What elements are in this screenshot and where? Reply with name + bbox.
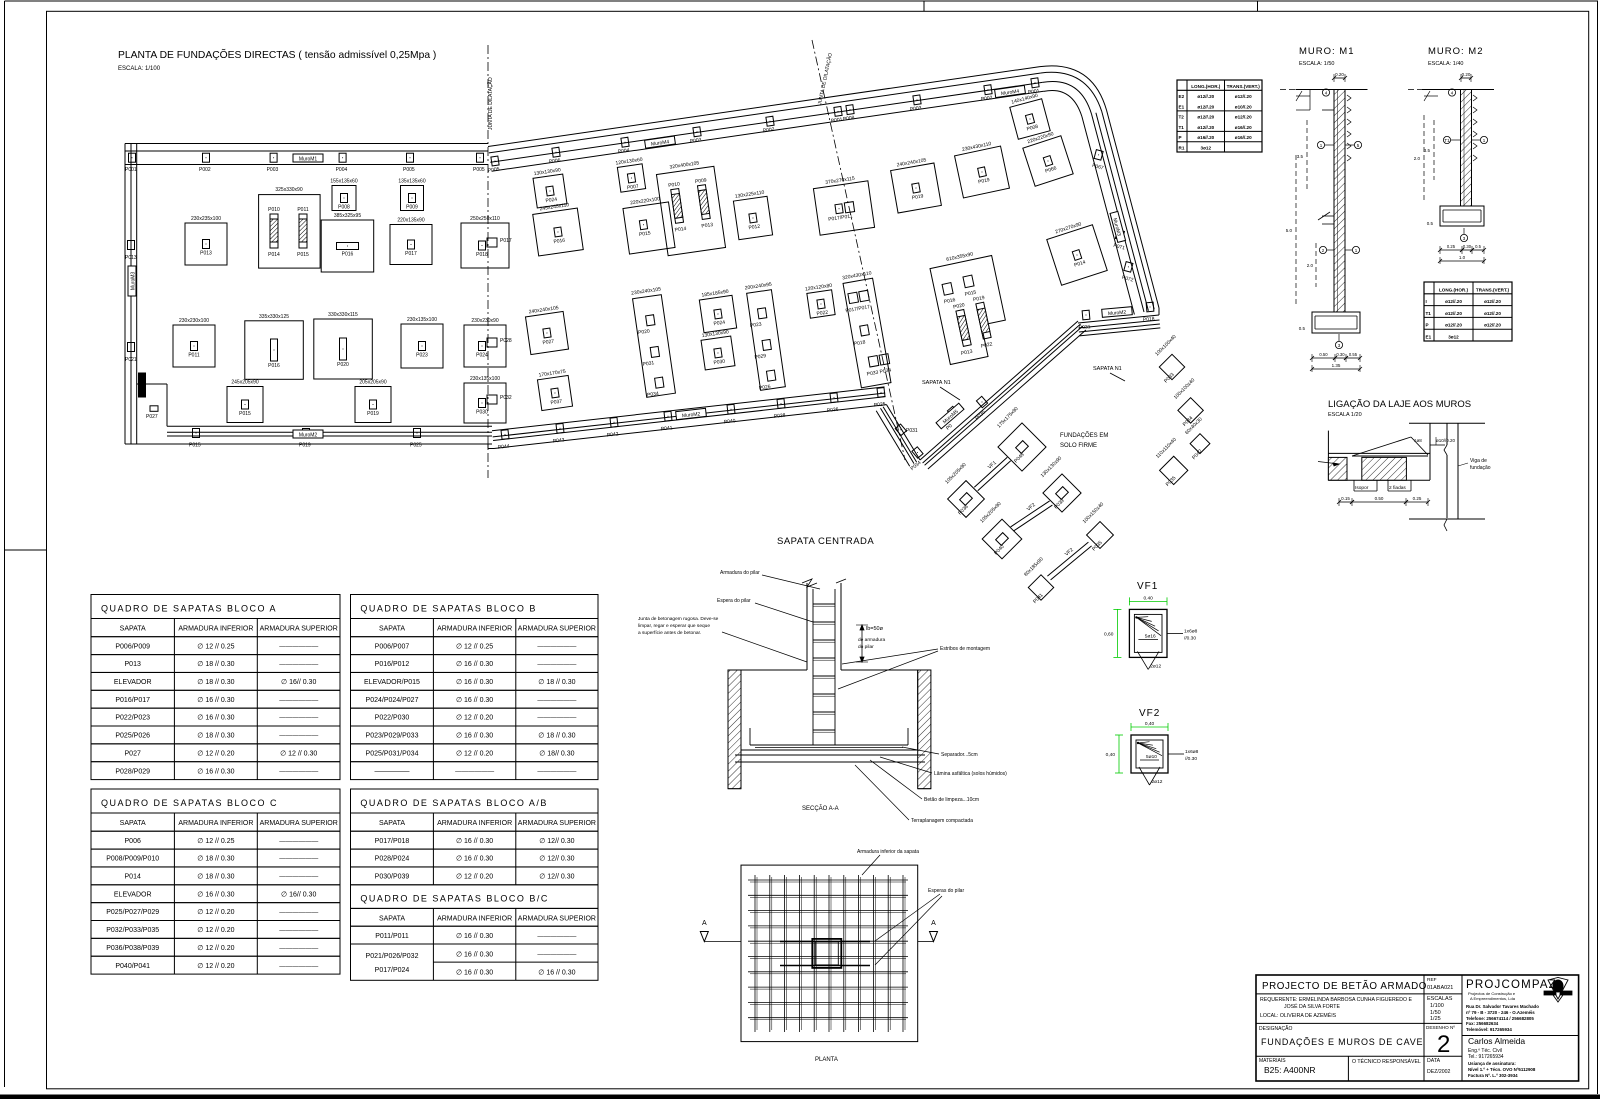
svg-text:ø16//.20: ø16//.20 [1197, 135, 1214, 140]
svg-text:DEZ/2002: DEZ/2002 [1427, 1069, 1450, 1075]
svg-text:ø12//.20: ø12//.20 [1445, 311, 1462, 316]
svg-text:0.25: 0.25 [1413, 496, 1422, 501]
svg-text:∅ 16// 0.30: ∅ 16// 0.30 [281, 679, 316, 686]
svg-text:P028/P029: P028/P029 [115, 768, 150, 775]
svg-text:ARMADURA SUPERIOR: ARMADURA SUPERIOR [518, 626, 596, 633]
svg-text:MURO: M1: MURO: M1 [1299, 46, 1355, 57]
svg-text:P: P [1179, 135, 1182, 140]
svg-text:∅ 12 // 0.20: ∅ 12 // 0.20 [456, 715, 493, 722]
svg-text:O TÉCNICO RESPONSÁVEL: O TÉCNICO RESPONSÁVEL [1352, 1058, 1421, 1065]
svg-text:230x135x100: 230x135x100 [470, 376, 500, 382]
svg-text:Esperas do pilar: Esperas do pilar [928, 888, 964, 894]
svg-text:∅ 18 // 0.30: ∅ 18 // 0.30 [197, 733, 234, 740]
svg-text:∅ 12 // 0.25: ∅ 12 // 0.25 [197, 643, 234, 650]
svg-text:1x6ø8: 1x6ø8 [1185, 749, 1199, 755]
svg-text:P019: P019 [367, 411, 379, 417]
svg-text:P006/P009: P006/P009 [115, 643, 150, 650]
svg-text:lb=50ø: lb=50ø [866, 626, 884, 632]
svg-text:∅ 16 // 0.30: ∅ 16 // 0.30 [456, 697, 493, 704]
svg-text:P015: P015 [189, 443, 201, 449]
svg-text:ø12//.20: ø12//.20 [1484, 323, 1501, 328]
svg-text:∅ 16 // 0.30: ∅ 16 // 0.30 [456, 952, 493, 959]
svg-text:0.5: 0.5 [1299, 326, 1306, 331]
svg-text:SOLO FIRME: SOLO FIRME [1060, 443, 1097, 449]
svg-text:ø12//.20: ø12//.20 [1235, 94, 1252, 99]
svg-text:∅ 18 // 0.30: ∅ 18 // 0.30 [538, 679, 575, 686]
svg-text:ARMADURA SUPERIOR: ARMADURA SUPERIOR [260, 820, 338, 827]
svg-text:0,40: 0,40 [1145, 721, 1155, 727]
svg-text:VF2: VF2 [1139, 708, 1160, 719]
svg-text:——————: —————— [279, 661, 319, 668]
svg-text:P021/P026/P032: P021/P026/P032 [366, 953, 419, 960]
svg-text:∅ 18 // 0.30: ∅ 18 // 0.30 [197, 856, 234, 863]
svg-text:P024: P024 [476, 353, 488, 359]
svg-text:ELEVADOR: ELEVADOR [114, 679, 152, 686]
svg-text:LONG.(HOR.): LONG.(HOR.) [1439, 287, 1469, 292]
svg-text:P015: P015 [297, 252, 309, 258]
svg-text://0.30: //0.30 [1184, 635, 1196, 641]
svg-text:P004: P004 [336, 167, 348, 173]
svg-text:∅ 12 // 0.20: ∅ 12 // 0.20 [197, 750, 234, 757]
svg-text:ø12//.20: ø12//.20 [1197, 104, 1214, 109]
svg-text:P025/P026: P025/P026 [115, 733, 150, 740]
svg-text:P006: P006 [125, 838, 141, 845]
svg-text:JUNTA DE DILATAÇÃO: JUNTA DE DILATAÇÃO [487, 77, 494, 130]
svg-text://0.30: //0.30 [1185, 756, 1197, 762]
svg-text:——————: —————— [279, 697, 319, 704]
svg-text:0.5: 0.5 [1427, 221, 1434, 226]
svg-text:LONG.(HOR.): LONG.(HOR.) [1191, 84, 1221, 89]
svg-text:0.30: 0.30 [1336, 352, 1345, 357]
svg-text:P014: P014 [268, 252, 280, 258]
svg-text:205x205x90: 205x205x90 [359, 380, 386, 386]
svg-text:ELEVADOR/P015: ELEVADOR/P015 [364, 679, 420, 686]
svg-text:0.5: 0.5 [1475, 244, 1481, 249]
svg-text:2.0: 2.0 [1307, 263, 1314, 268]
svg-text:P025/P027/P029: P025/P027/P029 [106, 909, 159, 916]
svg-text:——————: —————— [537, 661, 577, 668]
svg-text:P018: P018 [1143, 316, 1155, 323]
svg-text:P016/P017: P016/P017 [115, 697, 150, 704]
svg-text:ø12//.20: ø12//.20 [1445, 323, 1462, 328]
svg-text:PROJECTO DE BETÃO ARMADO: PROJECTO DE BETÃO ARMADO [1262, 981, 1427, 992]
svg-text:SAPATA N1: SAPATA N1 [1093, 366, 1122, 372]
svg-text:135x135x60: 135x135x60 [398, 179, 425, 185]
svg-text:PLANTA: PLANTA [815, 1057, 838, 1063]
svg-text:0,60: 0,60 [1104, 631, 1114, 637]
svg-text:Viga de: Viga de [1470, 458, 1487, 464]
svg-text:MuroM1: MuroM1 [299, 156, 318, 162]
svg-text:P017: P017 [500, 238, 512, 244]
svg-text:ø16//.20: ø16//.20 [1235, 135, 1252, 140]
svg-text:——————: —————— [279, 838, 319, 845]
svg-text:FUNDAÇÕES EM: FUNDAÇÕES EM [1060, 432, 1108, 439]
svg-text:325x330x90: 325x330x90 [275, 187, 302, 193]
svg-text:P011: P011 [297, 207, 309, 213]
svg-text:∅ 12 // 0.30: ∅ 12 // 0.30 [280, 750, 317, 757]
svg-text:ø12//.20: ø12//.20 [1197, 115, 1214, 120]
svg-text:∅ 12// 0.30: ∅ 12// 0.30 [539, 856, 574, 863]
svg-text:0.15: 0.15 [1341, 496, 1350, 501]
svg-text:230x135x100: 230x135x100 [407, 317, 437, 323]
svg-text:P016: P016 [342, 252, 354, 258]
svg-text:330x330x115: 330x330x115 [328, 312, 358, 318]
svg-text:P008: P008 [338, 205, 350, 211]
svg-text:——————: —————— [279, 715, 319, 722]
svg-text:E2: E2 [1179, 94, 1185, 99]
svg-text:P018: P018 [476, 252, 488, 258]
svg-text:FUNDAÇÕES E MUROS DE CAVE: FUNDAÇÕES E MUROS DE CAVE [1261, 1037, 1423, 1047]
svg-text:——————: —————— [279, 768, 319, 775]
svg-text:∅ 16 // 0.30: ∅ 16 // 0.30 [197, 715, 234, 722]
svg-text:∅ 12 // 0.20: ∅ 12 // 0.20 [197, 963, 234, 970]
svg-text:A: A [702, 920, 707, 927]
svg-text:ESCALA: 1/50: ESCALA: 1/50 [1299, 61, 1334, 67]
svg-text:P025/P031/P034: P025/P031/P034 [366, 750, 419, 757]
svg-text:230x235x100: 230x235x100 [191, 216, 221, 222]
svg-text:∅ 12 // 0.20: ∅ 12 // 0.20 [197, 927, 234, 934]
svg-text:ESCALA: 1/100: ESCALA: 1/100 [118, 66, 161, 72]
svg-text:1.0: 1.0 [1459, 255, 1466, 260]
svg-text:0.50: 0.50 [1319, 352, 1328, 357]
svg-text:Armadura inferior da sapata: Armadura inferior da sapata [857, 849, 919, 855]
svg-text:∅ 12// 0.30: ∅ 12// 0.30 [539, 838, 574, 845]
svg-text:P006/P007: P006/P007 [375, 643, 410, 650]
svg-text:5.0: 5.0 [1286, 228, 1293, 233]
svg-text:0,40: 0,40 [1106, 752, 1116, 758]
svg-text:SECÇÃO A-A: SECÇÃO A-A [802, 805, 839, 812]
svg-text:TRANS.(VERT.): TRANS.(VERT.) [1476, 287, 1510, 292]
svg-text:PROJCOMPAZ: PROJCOMPAZ [1466, 979, 1557, 991]
svg-text:Isopor: Isopor [1355, 485, 1369, 491]
svg-text:LIGAÇÃO DA LAJE AOS MUROS: LIGAÇÃO DA LAJE AOS MUROS [1328, 399, 1471, 410]
svg-text:Junta de betonagem rugosa. Dev: Junta de betonagem rugosa. Deve-se [638, 616, 719, 622]
svg-text:ø16//.20: ø16//.20 [1235, 125, 1252, 130]
svg-text:Tel.: 917265934: Tel.: 917265934 [1468, 1054, 1504, 1060]
svg-text:2.0: 2.0 [1414, 156, 1421, 161]
svg-text:∅ 16 // 0.30: ∅ 16 // 0.30 [197, 697, 234, 704]
svg-text:DATA: DATA [1427, 1058, 1441, 1064]
svg-text:∅ 16 // 0.30: ∅ 16 // 0.30 [456, 679, 493, 686]
svg-text:ø12//.20: ø12//.20 [1484, 299, 1501, 304]
svg-text:P032/P033/P035: P032/P033/P035 [106, 927, 159, 934]
svg-text:P020: P020 [337, 362, 349, 368]
svg-text:——————: —————— [537, 952, 577, 959]
svg-text:P021: P021 [125, 357, 137, 363]
svg-text:Nível 1.º + Técn. OVO Nº611290: Nível 1.º + Técn. OVO Nº6112908 [1468, 1067, 1536, 1072]
svg-text:ARMADURA INFERIOR: ARMADURA INFERIOR [178, 820, 253, 827]
svg-text:R1: R1 [1179, 146, 1185, 151]
svg-text:245x205x90: 245x205x90 [231, 380, 258, 386]
svg-text:P002: P002 [199, 167, 211, 173]
svg-text:2 fiadas: 2 fiadas [1389, 485, 1406, 491]
svg-text:Terraplanagem compactada: Terraplanagem compactada [911, 818, 973, 824]
svg-text:∅ 12// 0.30: ∅ 12// 0.30 [539, 874, 574, 881]
svg-text:∅ 16 // 0.30: ∅ 16 // 0.30 [456, 933, 493, 940]
svg-text:3.5: 3.5 [1297, 154, 1304, 159]
svg-text:∅ 12 // 0.20: ∅ 12 // 0.20 [456, 750, 493, 757]
svg-text:Carlos Almeida: Carlos Almeida [1468, 1036, 1525, 1046]
svg-text:230x230x90: 230x230x90 [471, 318, 498, 324]
svg-text:Separador...5cm: Separador...5cm [941, 752, 978, 758]
svg-text:Lâmina asfáltica (solos húmido: Lâmina asfáltica (solos húmidos) [934, 771, 1007, 777]
svg-text:ARMADURA INFERIOR: ARMADURA INFERIOR [178, 626, 253, 633]
svg-text:0.25: 0.25 [1447, 244, 1456, 249]
svg-text:1/100: 1/100 [1430, 1003, 1444, 1009]
svg-text:155x135x60: 155x135x60 [330, 179, 357, 185]
svg-text:A: A [931, 920, 936, 927]
svg-text:230x230x100: 230x230x100 [179, 318, 209, 324]
svg-text:∅ 16 // 0.30: ∅ 16 // 0.30 [456, 856, 493, 863]
svg-text:QUADRO DE SAPATAS BLOCO C: QUADRO DE SAPATAS BLOCO C [101, 798, 278, 808]
svg-text:P: P [1426, 323, 1429, 328]
svg-text:P022/P023: P022/P023 [115, 715, 150, 722]
svg-text:P036/P038/P039: P036/P038/P039 [106, 945, 159, 952]
svg-text:2ø12: 2ø12 [1152, 779, 1163, 785]
svg-text:QUADRO DE SAPATAS BLOCO B: QUADRO DE SAPATAS BLOCO B [360, 604, 537, 614]
svg-text:∅ 16 // 0.30: ∅ 16 // 0.30 [456, 970, 493, 977]
svg-text:SAPATA CENTRADA: SAPATA CENTRADA [777, 536, 874, 547]
svg-text:P017/P018: P017/P018 [375, 838, 410, 845]
svg-text:——————: —————— [279, 963, 319, 970]
svg-text:Armadura do pilar: Armadura do pilar [720, 570, 760, 576]
svg-text:ARMADURA INFERIOR: ARMADURA INFERIOR [437, 626, 512, 633]
svg-text:ARMADURA SUPERIOR: ARMADURA SUPERIOR [518, 915, 596, 922]
svg-text:SAPATA N1: SAPATA N1 [922, 380, 951, 386]
svg-text:TRANS.(VERT.): TRANS.(VERT.) [1227, 84, 1261, 89]
svg-text:220x135x90: 220x135x90 [397, 218, 424, 224]
svg-text:∅ 18// 0.30: ∅ 18// 0.30 [539, 750, 574, 757]
svg-text:P030/P039: P030/P039 [375, 874, 410, 881]
svg-text:3ø12: 3ø12 [1201, 146, 1212, 151]
svg-text:∅ 18 // 0.30: ∅ 18 // 0.30 [197, 874, 234, 881]
svg-text:T1: T1 [1179, 125, 1185, 130]
svg-text:——————: —————— [279, 733, 319, 740]
svg-text:∅ 18 // 0.30: ∅ 18 // 0.30 [197, 679, 234, 686]
svg-text:ø12//.20: ø12//.20 [1197, 94, 1214, 99]
svg-text:LOCAL: OLIVEIRA DE AZEMÉIS: LOCAL: OLIVEIRA DE AZEMÉIS [1260, 1012, 1337, 1019]
svg-text:5ø10: 5ø10 [1146, 754, 1157, 760]
svg-text:——————: —————— [537, 768, 577, 775]
svg-text:P005: P005 [403, 167, 415, 173]
svg-text:ARMADURA INFERIOR: ARMADURA INFERIOR [437, 820, 512, 827]
svg-text:P040/P041: P040/P041 [115, 963, 150, 970]
svg-text:JOSÉ DA SILVA FORTE: JOSÉ DA SILVA FORTE [1284, 1003, 1340, 1010]
svg-text:ARMADURA SUPERIOR: ARMADURA SUPERIOR [260, 626, 338, 633]
svg-text:0.55: 0.55 [1349, 352, 1358, 357]
svg-text:——————: —————— [455, 768, 495, 775]
svg-text:P027: P027 [125, 750, 141, 757]
svg-text:P001: P001 [125, 167, 137, 173]
svg-text:SAPATA: SAPATA [379, 915, 405, 922]
svg-text:QUADRO DE SAPATAS BLOCO B/C: QUADRO DE SAPATAS BLOCO B/C [360, 893, 549, 903]
svg-text:2: 2 [1437, 1031, 1450, 1058]
svg-text:2ø12: 2ø12 [1150, 663, 1161, 669]
svg-text:P003: P003 [267, 167, 279, 173]
svg-text:REF: REF [1427, 977, 1437, 983]
svg-text:P027: P027 [146, 414, 158, 420]
svg-text:ø12//.20: ø12//.20 [1235, 115, 1252, 120]
svg-text:1x6ø8: 1x6ø8 [1184, 628, 1198, 634]
svg-text:P013: P013 [125, 255, 137, 261]
svg-text:01ABA021: 01ABA021 [1427, 985, 1453, 991]
svg-text:QUADRO DE SAPATAS BLOCO A: QUADRO DE SAPATAS BLOCO A [101, 604, 277, 614]
svg-text:SAPATA: SAPATA [379, 820, 405, 827]
svg-text:ESCALA: 1/40: ESCALA: 1/40 [1428, 61, 1463, 67]
svg-text:P013: P013 [125, 661, 141, 668]
svg-text:ø12//.20: ø12//.20 [1445, 299, 1462, 304]
svg-text:MATERIAIS: MATERIAIS [1259, 1058, 1286, 1064]
svg-text:1ø8: 1ø8 [1414, 438, 1422, 443]
svg-text:P030: P030 [476, 410, 488, 416]
svg-text:P008/P009/P010: P008/P009/P010 [106, 856, 159, 863]
svg-text:SAPATA: SAPATA [379, 626, 405, 633]
svg-text:∅ 12 // 0.20: ∅ 12 // 0.20 [197, 945, 234, 952]
svg-text:P013: P013 [200, 251, 212, 257]
svg-text:∅ 18 // 0.30: ∅ 18 // 0.30 [197, 661, 234, 668]
svg-text:ELEVADOR: ELEVADOR [114, 891, 152, 898]
svg-text:MURO: M2: MURO: M2 [1428, 46, 1484, 57]
svg-text:5ø16: 5ø16 [1145, 633, 1156, 639]
svg-text:Usiança de assinatura:: Usiança de assinatura: [1468, 1061, 1516, 1066]
svg-text:0.40: 0.40 [1144, 595, 1154, 601]
svg-text:385x325x95: 385x325x95 [334, 213, 361, 219]
svg-text:limpar, regar e esperar que se: limpar, regar e esperar que seque [638, 623, 710, 629]
svg-text:P016/P012: P016/P012 [375, 661, 410, 668]
svg-text:∅ 16 // 0.30: ∅ 16 // 0.30 [197, 768, 234, 775]
svg-text:P025: P025 [410, 443, 422, 449]
svg-text:a superfície antes de betonar.: a superfície antes de betonar. [638, 630, 701, 636]
svg-text:∅ 12 // 0.25: ∅ 12 // 0.25 [197, 838, 234, 845]
svg-text:——————: —————— [537, 933, 577, 940]
svg-text:ø10//.20: ø10//.20 [1235, 104, 1252, 109]
svg-text:0.20: 0.20 [1462, 72, 1471, 77]
svg-text:——————: —————— [537, 643, 577, 650]
svg-text:SAPATA: SAPATA [120, 820, 146, 827]
svg-text:1/25: 1/25 [1430, 1016, 1441, 1022]
svg-text:P019: P019 [299, 443, 311, 449]
svg-text:I: I [1426, 299, 1427, 304]
svg-text:—————: ————— [375, 768, 410, 775]
svg-text:——————: —————— [279, 927, 319, 934]
svg-text:P010: P010 [268, 207, 280, 213]
svg-text:∅ 16 // 0.30: ∅ 16 // 0.30 [456, 838, 493, 845]
svg-text:ESCALAS: ESCALAS [1427, 996, 1453, 1002]
svg-text:Factura Nº. L.º 302-3934: Factura Nº. L.º 302-3934 [1468, 1073, 1518, 1078]
svg-text:P022/P030: P022/P030 [375, 715, 410, 722]
svg-text:P031: P031 [906, 428, 918, 434]
svg-text:T2: T2 [1179, 115, 1185, 120]
svg-text:Fax: 256682634: Fax: 256682634 [1466, 1021, 1499, 1026]
svg-text:ARMADURA INFERIOR: ARMADURA INFERIOR [437, 915, 512, 922]
svg-text:0.30: 0.30 [1463, 244, 1472, 249]
svg-text:E1: E1 [1426, 335, 1432, 340]
svg-text:Estribos de montagem: Estribos de montagem [940, 646, 990, 652]
svg-text:VF1: VF1 [1137, 581, 1158, 592]
svg-text:∅ 16// 0.30: ∅ 16// 0.30 [281, 891, 316, 898]
svg-text:P009: P009 [406, 205, 418, 211]
svg-text:SAPATA: SAPATA [120, 626, 146, 633]
svg-text:0.20: 0.20 [1335, 72, 1344, 77]
svg-text:REQUERENTE: ERMELINDA BARBOSA: REQUERENTE: ERMELINDA BARBOSA CUNHA FIGU… [1260, 997, 1412, 1003]
svg-text:P031: P031 [1079, 324, 1091, 331]
svg-text:P005: P005 [473, 167, 485, 173]
svg-text:ARMADURA SUPERIOR: ARMADURA SUPERIOR [518, 820, 596, 827]
svg-text:T1: T1 [1444, 138, 1450, 143]
svg-text:DESIGNAÇÃO: DESIGNAÇÃO [1259, 1025, 1292, 1032]
svg-text:3.5: 3.5 [1424, 148, 1431, 153]
svg-text:∅ 16 // 0.30: ∅ 16 // 0.30 [456, 733, 493, 740]
svg-text:do pilar: do pilar [858, 644, 874, 650]
svg-text:P024/P024/P027: P024/P024/P027 [366, 697, 419, 704]
svg-text:T1: T1 [1426, 311, 1432, 316]
svg-text:A Empreendimentos, Lda: A Empreendimentos, Lda [1470, 996, 1516, 1001]
svg-text:P017: P017 [405, 251, 417, 257]
svg-text:P023/P029/P033: P023/P029/P033 [366, 733, 419, 740]
svg-text:ø12//.20: ø12//.20 [1484, 311, 1501, 316]
svg-text:de armadura: de armadura [858, 637, 886, 643]
svg-text:——————: —————— [279, 945, 319, 952]
svg-text:∅ 18 // 0.30: ∅ 18 // 0.30 [538, 733, 575, 740]
svg-text:Rua Dr. Salvador Tavares Macha: Rua Dr. Salvador Tavares Machado [1466, 1004, 1539, 1009]
svg-text:P014: P014 [125, 874, 141, 881]
svg-text:P017/P024: P017/P024 [375, 967, 410, 974]
svg-text:3ø12: 3ø12 [1448, 335, 1459, 340]
svg-text:QUADRO DE SAPATAS BLOCO A/B: QUADRO DE SAPATAS BLOCO A/B [360, 798, 548, 808]
svg-text:P011: P011 [188, 353, 200, 359]
svg-text:E1: E1 [1179, 104, 1185, 109]
svg-text:Espera do pilar: Espera do pilar [717, 598, 751, 604]
svg-text:——————: —————— [279, 856, 319, 863]
svg-text:ø12//.20: ø12//.20 [1197, 125, 1214, 130]
svg-text:——————: —————— [537, 715, 577, 722]
svg-text:Betão de limpeza...10cm: Betão de limpeza...10cm [924, 797, 979, 803]
svg-text:nº 79 - B - 3720 - 246 - O.Aze: nº 79 - B - 3720 - 246 - O.Azeméis [1466, 1010, 1535, 1015]
svg-text:250x250x110: 250x250x110 [470, 216, 500, 222]
svg-text:P023: P023 [416, 353, 428, 359]
svg-text:∅ 16 // 0.30: ∅ 16 // 0.30 [456, 661, 493, 668]
svg-text:——————: —————— [537, 697, 577, 704]
svg-text:MuroM3: MuroM3 [130, 272, 136, 291]
svg-text:——————: —————— [279, 909, 319, 916]
svg-text:ESCALA 1/20: ESCALA 1/20 [1328, 412, 1362, 418]
svg-text:∅ 12 // 0.20: ∅ 12 // 0.20 [456, 874, 493, 881]
svg-text:——————: —————— [279, 874, 319, 881]
svg-text:ø10//0.20: ø10//0.20 [1436, 438, 1456, 443]
svg-text:P032: P032 [500, 395, 512, 401]
svg-text:∅ 12 // 0.20: ∅ 12 // 0.20 [197, 909, 234, 916]
svg-text:0.50: 0.50 [1375, 496, 1384, 501]
svg-text:DESENHO Nº: DESENHO Nº [1426, 1025, 1455, 1030]
svg-text:MuroM2: MuroM2 [299, 432, 318, 438]
svg-text:∅ 12 // 0.25: ∅ 12 // 0.25 [456, 643, 493, 650]
svg-text:P015: P015 [239, 411, 251, 417]
svg-text:P028/P024: P028/P024 [375, 856, 410, 863]
svg-text:∅ 16 // 0.30: ∅ 16 // 0.30 [538, 970, 575, 977]
svg-text:P011/P011: P011/P011 [375, 933, 409, 940]
svg-text:1.35: 1.35 [1332, 363, 1341, 368]
svg-text:P016: P016 [268, 363, 280, 369]
svg-text:Telemóvel: 917265934: Telemóvel: 917265934 [1466, 1027, 1512, 1032]
svg-text:335x330x125: 335x330x125 [259, 314, 289, 320]
svg-text:PLANTA DE FUNDAÇÕES DIRECTAS (: PLANTA DE FUNDAÇÕES DIRECTAS ( tensão ad… [118, 48, 436, 61]
svg-text:fundação: fundação [1470, 465, 1491, 471]
svg-text:P028: P028 [500, 338, 512, 344]
svg-text:B25: A400NR: B25: A400NR [1264, 1065, 1316, 1075]
svg-text:——————: —————— [279, 643, 319, 650]
svg-text:∅ 16 // 0.30: ∅ 16 // 0.30 [197, 891, 234, 898]
